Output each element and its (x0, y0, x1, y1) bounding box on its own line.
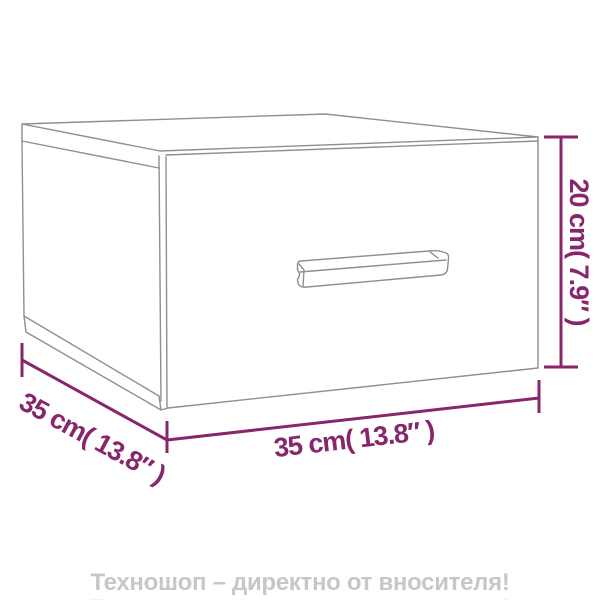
top-face (22, 114, 538, 151)
bottom-front-edge (168, 368, 538, 408)
nightstand-outline (22, 114, 538, 410)
height-dimension-label: 20 cm( 7.9″ ) (564, 178, 594, 325)
nightstand-line-drawing: 20 cm( 7.9″ ) 35 cm( 13.8″ ) 35 cm( 13.8… (0, 0, 600, 600)
front-left-edges (159, 156, 167, 407)
side-face-edges (22, 141, 168, 410)
top-panel-edge (22, 124, 159, 168)
watermark-text: Техношоп – директно от вносителя! (0, 571, 600, 595)
handle-outline (298, 251, 449, 287)
top-front-edge-inner (166, 141, 538, 155)
drawer-handle (298, 251, 449, 287)
dimension-lines (22, 137, 578, 453)
width-dimension-label: 35 cm( 13.8″ ) (272, 415, 435, 463)
product-dimension-diagram: 20 cm( 7.9″ ) 35 cm( 13.8″ ) 35 cm( 13.8… (0, 0, 600, 600)
